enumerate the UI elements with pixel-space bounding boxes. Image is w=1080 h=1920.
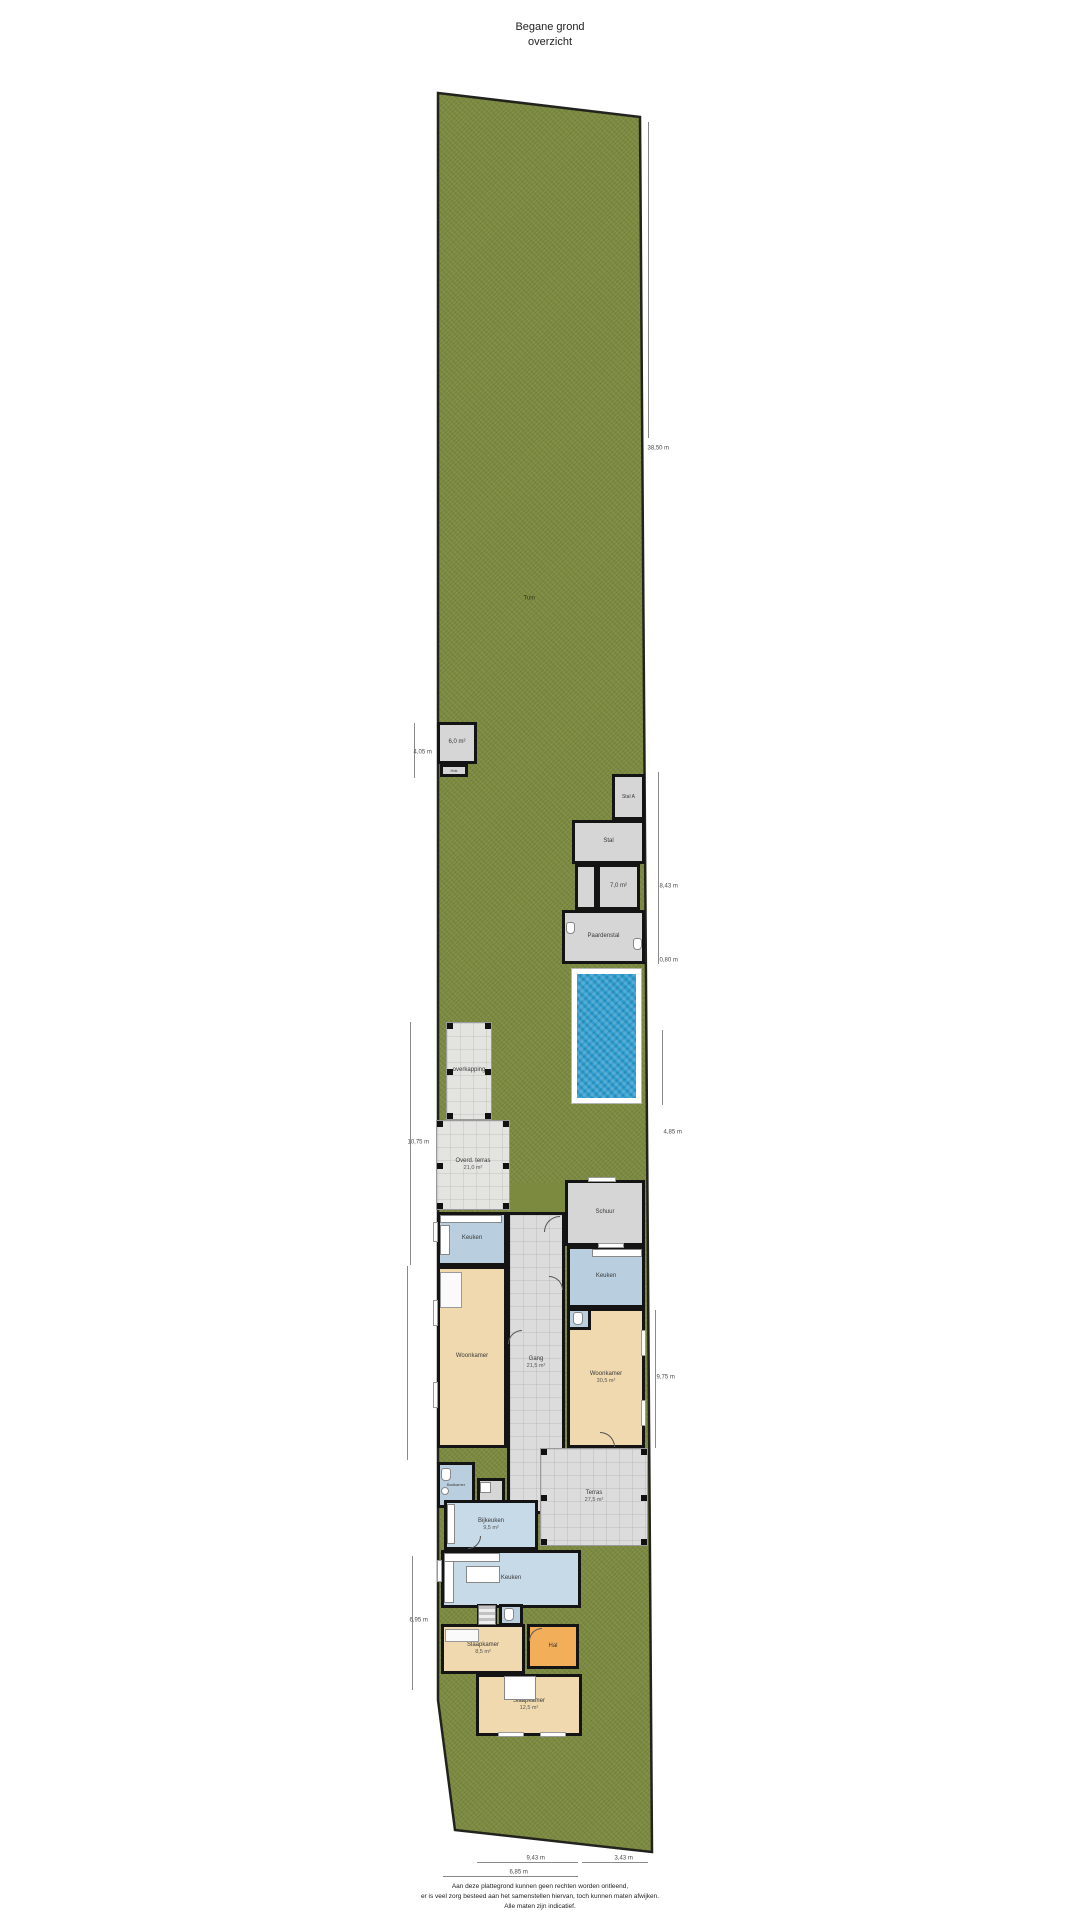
veranda-post [437,1163,443,1169]
window [540,1732,566,1737]
fixture-bed [504,1676,536,1700]
dimension-label: 38,50 m [648,446,649,447]
dimension-label: 4,05 m [414,750,415,751]
window [433,1382,438,1408]
disclaimer-line3: Alle maten zijn indicatief. [421,1902,659,1912]
page-title-line2: overzicht [515,35,584,50]
dimension-label: 4,85 m [664,1130,665,1131]
page-title: Begane grond overzicht [515,20,584,50]
room-label: 7,0 m² [600,867,637,907]
fixture-wc [566,922,575,934]
fixture-counter [440,1225,450,1255]
window [433,1300,438,1326]
window [641,1330,646,1356]
disclaimer-line2: er is veel zorg besteed aan het samenste… [421,1892,659,1902]
veranda-post [541,1449,547,1455]
veranda-post [485,1113,491,1119]
floorplan-canvas: overkappingOverd. terras21,0 m²6,0 m²Hok… [0,0,1080,1920]
room-label: Woonkamer30,5 m² [570,1311,642,1445]
room-hok-klein: Hok [440,764,468,777]
fixture-furn [440,1272,462,1308]
fixture-stairs [478,1605,496,1625]
veranda-post [485,1069,491,1075]
room-stal-a: Stal A [612,774,645,820]
dimension-label: 0,80 m [660,958,661,959]
floorplan-layers: overkappingOverd. terras21,0 m²6,0 m²Hok… [0,0,1080,1920]
room-hok-1 [575,864,597,910]
dimension-line [407,1266,408,1460]
pool-water [577,974,636,1098]
fixture-counter [447,1504,455,1544]
window [437,1560,442,1582]
veranda-overkapping: overkapping [446,1022,492,1120]
veranda-post [503,1163,509,1169]
room-label: Keuken [570,1249,642,1305]
veranda-post [437,1121,443,1127]
dimension-label: 9,75 m [657,1375,658,1376]
veranda-post [541,1539,547,1545]
room-stal-b: Stal [572,820,645,864]
room-terras-achter: Terras27,5 m² [540,1448,648,1546]
room-label: Hok [443,767,465,774]
dimension-line [443,1876,578,1877]
fixture-counter [444,1553,500,1562]
dimension-line [582,1862,648,1863]
veranda-post [503,1203,509,1209]
disclaimer-text: Aan deze plattegrond kunnen geen rechten… [421,1882,659,1911]
room-label: Overd. terras21,0 m² [437,1121,509,1209]
veranda-post [641,1539,647,1545]
veranda-post [437,1203,443,1209]
window [588,1177,616,1182]
fixture-island [466,1566,500,1583]
fixture-washer [480,1482,491,1493]
patch-gras-binnenplaats [511,1183,565,1215]
dimension-label: 6,95 m [410,1618,411,1619]
fixture-sink [441,1487,449,1495]
room-label: 6,0 m² [440,725,474,761]
dimension-label: 6,85 m [510,1870,511,1871]
page-title-line1: Begane grond [515,20,584,35]
dimension-line [662,1030,663,1105]
window [598,1243,624,1248]
fixture-furn [445,1629,479,1642]
room-schuur-achter: Schuur [565,1180,645,1246]
garden-label: Tuin [524,596,525,597]
window [641,1400,646,1426]
veranda-overdekt-terras: Overd. terras21,0 m² [436,1120,510,1210]
room-bijkeuken: Bijkeuken9,5 m² [444,1500,538,1550]
dimension-label: 10,75 m [408,1140,409,1141]
room-label: Stal A [615,777,642,817]
window [433,1222,438,1242]
room-label: Paardenstal [565,913,642,961]
room-label: Stal [575,823,642,861]
window [498,1732,524,1737]
fixture-wc [441,1468,451,1481]
fixture-wc [573,1312,583,1325]
fixture-wc [633,938,642,950]
dimension-label: 8,43 m [660,884,661,885]
room-paardenstal: Paardenstal [562,910,645,964]
room-label: Schuur [568,1183,642,1243]
fixture-wc [504,1608,514,1621]
room-schuur-klein: 6,0 m² [437,722,477,764]
fixture-counter [592,1249,642,1257]
veranda-post [503,1121,509,1127]
room-hok-2: 7,0 m² [597,864,640,910]
veranda-post [641,1449,647,1455]
veranda-post [447,1069,453,1075]
room-label: Terras27,5 m² [541,1449,647,1545]
dimension-line [477,1862,578,1863]
fixture-counter [440,1215,502,1223]
dimension-label: 3,43 m [615,1856,616,1857]
disclaimer-line1: Aan deze plattegrond kunnen geen rechten… [421,1882,659,1892]
veranda-post [447,1023,453,1029]
dimension-line [658,772,659,964]
veranda-post [541,1495,547,1501]
veranda-post [641,1495,647,1501]
veranda-post [447,1113,453,1119]
dimension-line [648,122,649,438]
veranda-post [485,1023,491,1029]
dimension-label: 9,43 m [527,1856,528,1857]
room-label: Bijkeuken9,5 m² [447,1503,535,1547]
